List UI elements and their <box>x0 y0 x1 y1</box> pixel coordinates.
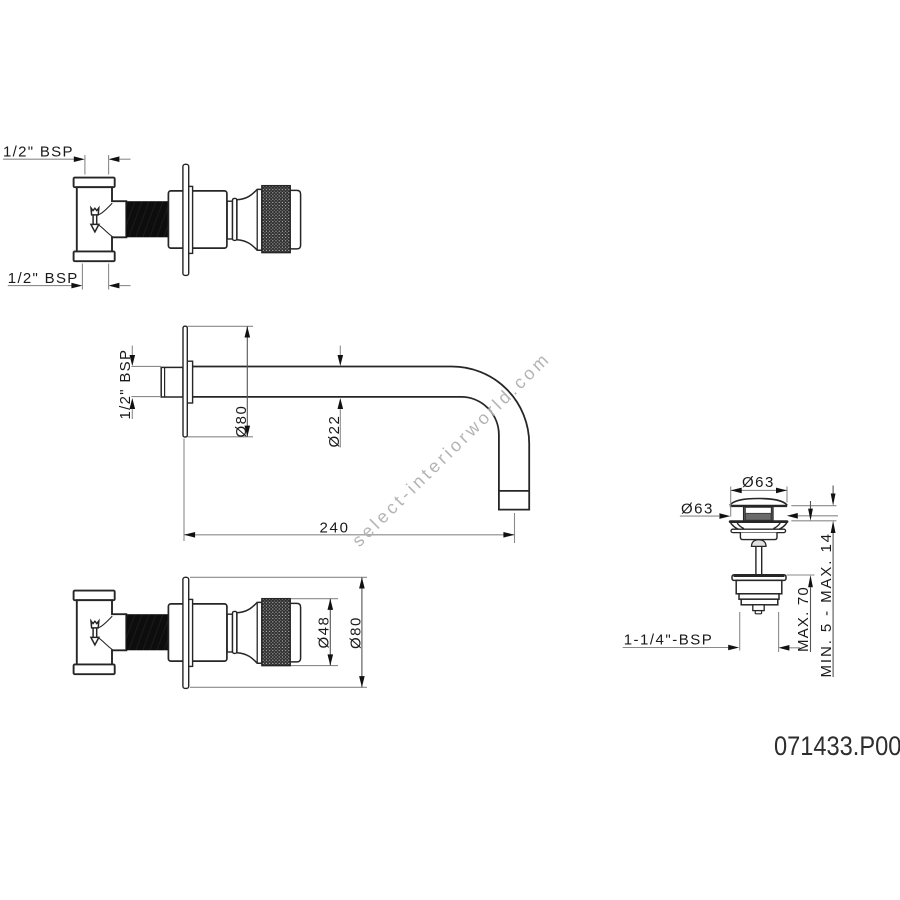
svg-text:Ø63: Ø63 <box>681 501 714 518</box>
svg-text:Ø80: Ø80 <box>233 405 250 438</box>
svg-text:071433.P00: 071433.P00 <box>774 731 900 761</box>
svg-text:Ø80: Ø80 <box>347 616 364 649</box>
svg-text:MAX. 70: MAX. 70 <box>795 586 812 652</box>
svg-text:1/2" BSP: 1/2" BSP <box>8 270 79 287</box>
svg-text:MIN. 5 - MAX. 14: MIN. 5 - MAX. 14 <box>818 532 835 677</box>
svg-text:Ø22: Ø22 <box>326 415 343 448</box>
svg-text:Ø48: Ø48 <box>316 616 333 649</box>
svg-text:240: 240 <box>320 520 350 537</box>
svg-text:Ø63: Ø63 <box>742 474 775 491</box>
svg-text:1-1/4"-BSP: 1-1/4"-BSP <box>624 631 714 648</box>
svg-text:1/2" BSP: 1/2" BSP <box>3 144 74 161</box>
